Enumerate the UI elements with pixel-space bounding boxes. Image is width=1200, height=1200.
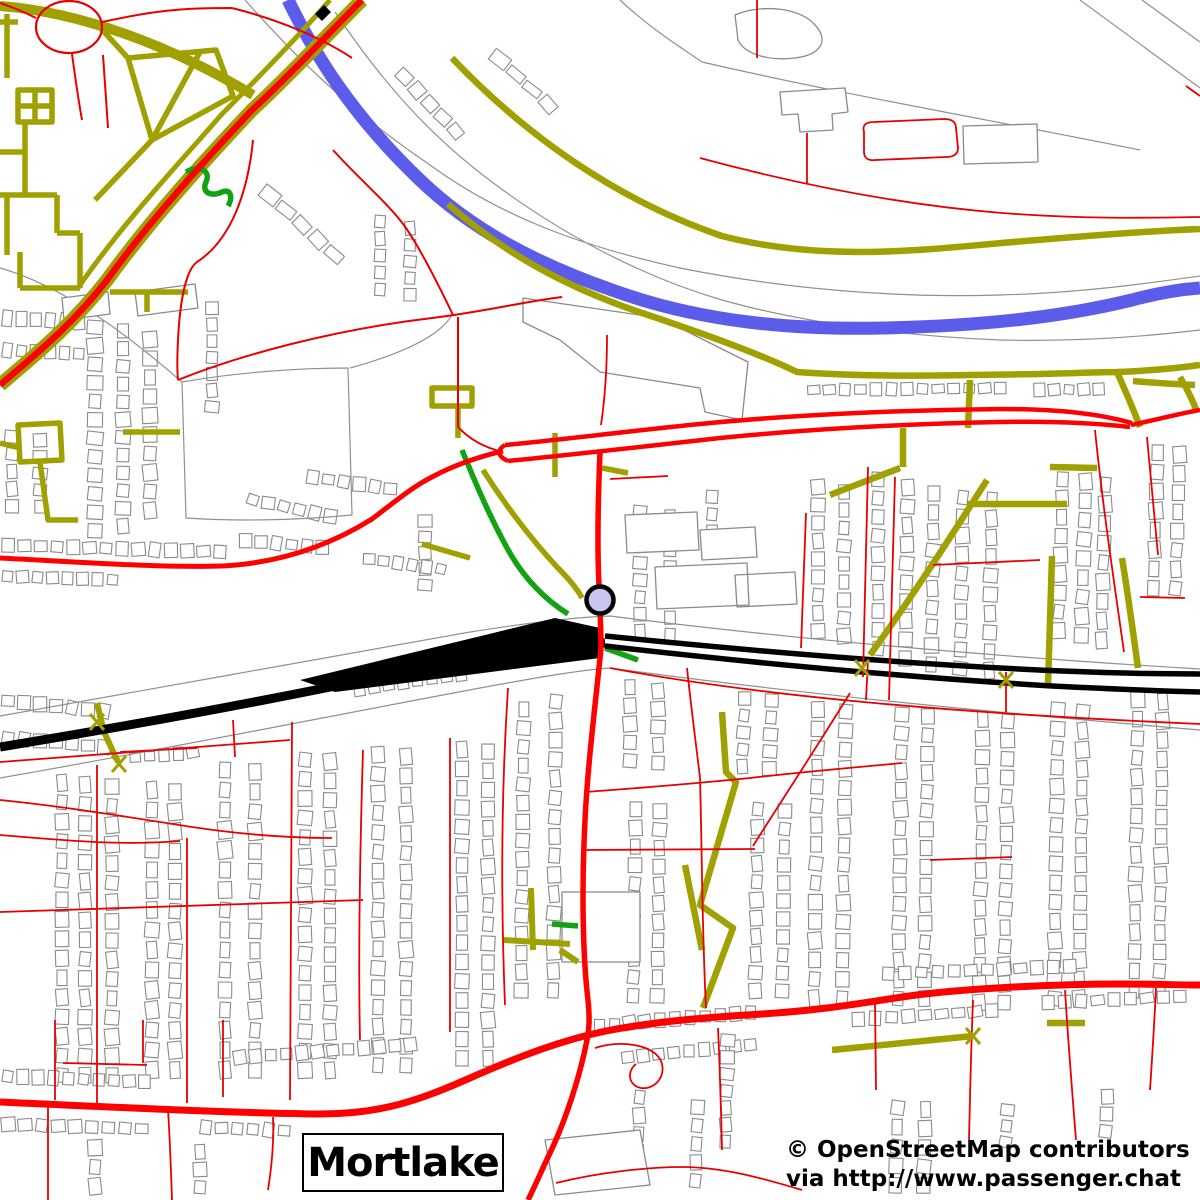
house-footprint [169,883,180,899]
house-footprint [934,1008,949,1019]
house-footprint [1077,722,1088,740]
house-footprint [920,803,933,818]
house-footprint [146,781,158,799]
house-footprint [901,382,914,395]
house-footprint [719,1067,734,1080]
house-footprint [6,481,18,497]
house-footprint [2,310,13,327]
house-footprint [778,876,791,891]
house-footprint [403,255,416,268]
house-footprint [651,951,664,966]
house-footprint [1030,960,1043,975]
house-footprint [220,802,231,818]
house-footprint [57,970,67,986]
house-footprint [193,1162,207,1177]
house-footprint [927,523,939,540]
house-footprint [978,382,992,393]
house-footprint [456,858,468,873]
house-footprint [976,844,986,859]
house-footprint [420,94,439,113]
house-footprint [778,822,790,836]
attribution-line-2: via http://www.passenger.chat [786,1165,1190,1194]
house-footprint [516,851,530,867]
house-footprint [1075,994,1087,1008]
house-footprint [55,911,69,927]
house-footprint [1095,632,1107,649]
house-footprint [1075,798,1088,816]
house-footprint [454,838,469,853]
house-footprint [892,915,907,930]
house-footprint [622,716,637,732]
house-footprint [1155,829,1167,845]
house-footprint [104,836,120,854]
house-footprint [324,966,335,981]
house-footprint [5,500,18,513]
house-footprint [838,838,850,853]
house-footprint [146,941,158,959]
house-footprint [838,799,852,815]
house-footprint [811,570,824,584]
house-footprint [87,450,102,465]
house-footprint [1050,913,1061,929]
house-footprint [249,1062,262,1078]
house-footprint [399,961,412,976]
house-footprint [807,385,820,395]
house-footprint [898,632,912,647]
house-footprint [145,1042,160,1058]
house-footprint [837,593,850,607]
house-footprint [482,974,493,989]
house-footprint [323,1005,338,1020]
house-footprint [207,335,217,347]
house-footprint [368,479,381,494]
house-footprint [894,726,909,741]
house-footprint [1172,485,1184,501]
house-footprint [117,448,129,462]
house-footprint [1152,445,1164,461]
house-footprint [777,930,790,944]
house-footprint [653,877,664,893]
house-footprint [79,989,91,1007]
house-footprint [68,1119,83,1133]
house-footprint [836,933,850,948]
house-footprint [920,841,932,856]
house-footprint [406,558,418,571]
house-footprint [298,868,313,883]
house-footprint [59,346,70,360]
house-footprint [1128,885,1142,903]
house-footprint [7,464,18,479]
house-footprint [107,991,117,1006]
house-footprint [855,385,867,394]
house-footprint [1047,932,1062,950]
house-footprint [275,200,297,220]
house-footprint [548,809,561,824]
house-footprint [1001,751,1014,766]
house-footprint [1150,464,1164,480]
house-footprint [55,1009,69,1025]
house-footprint [548,752,562,767]
house-footprint [994,382,1006,394]
house-footprint [665,628,676,641]
house-footprint [1124,993,1136,1005]
house-footprint [88,524,103,539]
house-footprint [984,605,996,621]
house-footprint [547,963,560,980]
house-footprint [547,983,558,998]
house-footprint [516,814,530,829]
house-footprint [538,94,558,114]
house-footprint [811,837,822,852]
house-footprint [954,623,967,638]
house-footprint [634,1090,645,1104]
house-footprint [918,954,931,969]
house-footprint [143,446,156,461]
house-footprint [78,854,92,869]
house-footprint [219,782,231,798]
house-footprint [483,820,494,836]
house-footprint [812,588,823,602]
house-footprint [46,572,58,584]
house-footprint [169,784,182,800]
house-footprint [82,541,97,554]
house-footprint [108,1075,120,1087]
house-footprint [918,1120,932,1137]
house-footprint [627,988,639,1003]
house-footprint [999,807,1014,824]
house-footprint [249,923,262,939]
house-footprint [1075,856,1087,872]
house-footprint [218,982,232,998]
house-footprint [119,1122,132,1134]
house-footprint [105,779,119,794]
house-footprint [1131,691,1146,707]
house-footprint [116,541,129,556]
house-footprint [517,795,530,811]
house-footprint [548,848,560,863]
house-footprint [1156,790,1167,805]
house-footprint [1097,594,1108,610]
house-footprint [481,936,495,951]
house-footprint [808,990,820,1008]
house-footprint [169,983,182,999]
house-footprint [720,1034,735,1047]
house-footprint [378,556,390,567]
house-footprint [231,1122,243,1135]
house-footprint [1076,838,1087,854]
house-footprint [79,952,91,967]
house-footprint [248,982,261,1000]
house-footprint [168,863,181,879]
house-footprint [1090,995,1104,1006]
house-footprint [324,773,336,789]
house-footprint [310,1044,325,1059]
house-footprint [920,859,932,874]
house-footprint [1100,1107,1113,1121]
house-footprint [549,770,560,787]
house-footprint [625,680,635,695]
house-footprint [180,544,194,559]
house-footprint [1156,809,1167,824]
house-footprint [373,1058,384,1073]
house-footprint [169,1003,182,1019]
house-footprint [170,1062,181,1079]
house-footprint [1155,886,1167,901]
house-footprint [298,752,311,767]
house-footprint [86,337,104,354]
house-footprint [812,516,825,530]
house-footprint [371,785,386,802]
house-footprint [195,1144,206,1159]
house-footprint [652,737,663,752]
house-footprint [324,811,335,829]
house-footprint [143,351,158,366]
house-footprint [352,477,366,492]
house-footprint [164,543,177,558]
house-footprint [298,848,311,865]
house-footprint [892,1119,903,1135]
house-footprint [146,882,158,899]
house-footprint [131,542,146,556]
house-footprint [919,935,930,950]
house-footprint [1051,760,1064,775]
house-footprint [886,1011,898,1023]
house-footprint [218,882,232,899]
house-footprint [45,312,56,328]
house-footprint [948,965,960,977]
house-footprint [901,1009,915,1024]
house-footprint [1155,925,1165,941]
house-footprint [1049,837,1063,852]
house-footprint [1053,547,1068,563]
house-footprint [79,932,90,948]
house-footprint [839,742,852,757]
house-footprint [169,843,180,859]
house-footprint [902,517,913,534]
house-footprint [1153,944,1166,959]
map-canvas[interactable] [0,0,1200,1200]
house-footprint [219,1021,231,1039]
house-footprint [1148,541,1162,559]
house-footprint [323,1023,336,1040]
house-footprint [635,591,646,604]
house-footprint [56,774,67,791]
house-footprint [974,919,986,936]
house-footprint [56,1048,68,1063]
house-footprint [384,483,397,495]
house-footprint [1000,1104,1014,1117]
house-footprint [372,863,384,879]
house-footprint [1,695,14,706]
house-footprint [1001,714,1014,729]
house-footprint [105,875,119,890]
house-footprint [87,357,102,372]
house-footprint [323,793,337,808]
house-footprint [975,750,990,765]
house-footprint [778,804,792,818]
house-footprint [400,981,411,996]
house-footprint [1013,963,1027,974]
house-footprint [893,858,907,873]
house-footprint [1129,828,1143,844]
house-footprint [954,585,969,600]
house-footprint [1078,512,1091,527]
house-footprint [55,1027,69,1045]
house-footprint [400,768,413,784]
house-footprint [1074,895,1087,910]
house-footprint [1053,565,1067,582]
house-footprint [76,572,88,585]
house-footprint [481,782,494,797]
house-footprint [395,67,414,86]
house-footprint [79,776,91,793]
house-footprint [79,912,92,929]
house-footprint [1157,751,1168,767]
house-footprint [89,1159,100,1174]
house-footprint [100,542,112,554]
house-footprint [400,846,412,861]
place-label-mortlake: Mortlake [302,1133,504,1192]
house-footprint [838,875,849,892]
house-footprint [418,515,432,527]
house-footprint [1074,628,1089,644]
house-footprint [624,698,637,714]
house-footprint [482,955,495,970]
house-footprint [483,898,494,913]
house-footprint [433,108,452,127]
house-footprint [89,394,101,408]
house-footprint [515,833,529,848]
house-footprint [420,560,432,574]
house-footprint [480,1011,495,1029]
house-footprint [547,867,561,884]
house-footprint [985,510,998,527]
house-footprint [219,762,231,778]
map-viewport: Mortlake © OpenStreetMap contributors vi… [0,0,1200,1200]
house-footprint [515,908,529,923]
house-footprint [145,981,160,1000]
house-footprint [917,383,928,394]
house-footprint [739,692,751,705]
house-footprint [1074,607,1089,625]
house-footprint [418,579,433,591]
house-footprint [194,1180,206,1194]
house-footprint [144,751,154,761]
house-footprint [404,288,416,301]
house-footprint [337,475,350,489]
house-footprint [55,873,70,889]
house-footprint [299,966,311,981]
house-footprint [975,900,986,916]
house-footprint [1049,798,1064,814]
house-footprint [73,348,84,359]
house-footprint [324,928,335,943]
house-footprint [87,375,103,390]
house-footprint [921,765,933,781]
house-footprint [122,1075,135,1088]
house-footprint [107,798,118,813]
house-footprint [18,1118,33,1131]
house-footprint [200,1120,212,1135]
house-footprint [87,1139,102,1156]
house-footprint [87,320,104,335]
house-footprint [168,922,182,940]
house-footprint [1170,543,1182,558]
house-footprint [516,777,531,792]
house-footprint [1050,702,1065,718]
house-footprint [652,756,665,770]
house-footprint [871,546,885,562]
house-footprint [837,611,851,625]
house-footprint [481,877,495,894]
house-footprint [105,914,119,930]
house-footprint [762,762,776,776]
house-footprint [1047,960,1059,973]
house-footprint [374,215,385,228]
house-footprint [456,935,467,950]
house-footprint [56,834,68,849]
house-footprint [400,903,412,918]
house-footprint [246,493,259,506]
house-footprint [838,857,851,872]
house-footprint [116,360,130,374]
house-footprint [481,801,494,817]
house-footprint [204,401,219,414]
house-footprint [1156,771,1168,787]
house-footprint [1057,509,1067,525]
house-footprint [1077,383,1090,396]
house-footprint [632,1107,645,1124]
house-footprint [372,882,384,899]
house-footprint [115,501,131,515]
house-footprint [810,798,823,813]
house-footprint [1129,924,1140,941]
house-footprint [93,1073,105,1086]
house-footprint [951,1008,965,1019]
house-footprint [370,766,385,781]
house-footprint [102,1122,115,1134]
house-footprint [811,623,825,638]
house-footprint [548,885,559,902]
house-footprint [1049,856,1063,871]
house-footprint [146,902,157,919]
boundary-lines [0,0,1200,520]
house-footprint [721,1101,732,1116]
house-footprint [374,283,385,296]
house-footprint [516,721,531,736]
house-footprint [636,1048,650,1063]
house-footprint [248,903,262,919]
house-footprint [621,1051,634,1064]
house-footprint [1173,465,1185,482]
house-footprint [514,983,528,998]
house-footprint [652,914,664,931]
house-footprint [1128,944,1141,960]
house-footprint [1053,604,1064,619]
house-footprint [1131,788,1143,804]
house-footprint [206,302,219,315]
house-footprint [872,604,884,619]
house-footprint [78,1048,93,1063]
house-footprint [811,552,824,566]
house-footprint [808,894,822,909]
house-footprint [623,754,637,768]
house-footprint [32,1070,45,1085]
house-footprint [839,521,850,535]
house-footprint [372,844,383,859]
house-footprint [322,474,335,485]
house-footprint [457,876,468,893]
